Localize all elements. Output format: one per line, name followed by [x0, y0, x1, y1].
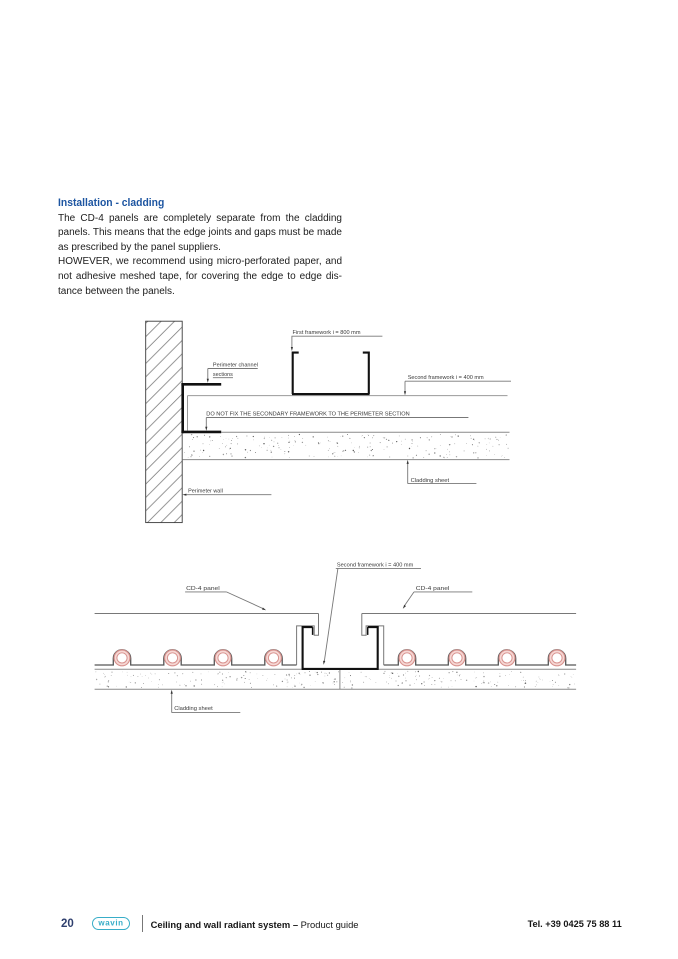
svg-text:Perimeter wall: Perimeter wall [188, 489, 223, 495]
svg-text:Cladding sheet: Cladding sheet [411, 478, 450, 484]
svg-text:Perimeter channel: Perimeter channel [213, 362, 258, 368]
svg-text:sections: sections [213, 372, 233, 378]
svg-text:DO NOT FIX THE SECONDARY FRAME: DO NOT FIX THE SECONDARY FRAMEWORK TO TH… [206, 411, 409, 417]
svg-text:First framework i = 800 mm: First framework i = 800 mm [293, 330, 361, 336]
svg-text:Second framework i = 400 mm: Second framework i = 400 mm [337, 563, 414, 569]
svg-text:CD-4 panel: CD-4 panel [186, 586, 220, 592]
svg-text:Cladding sheet: Cladding sheet [174, 706, 213, 712]
svg-text:Second framework i = 400 mm: Second framework i = 400 mm [408, 375, 484, 381]
svg-text:CD-4 panel: CD-4 panel [416, 586, 450, 592]
